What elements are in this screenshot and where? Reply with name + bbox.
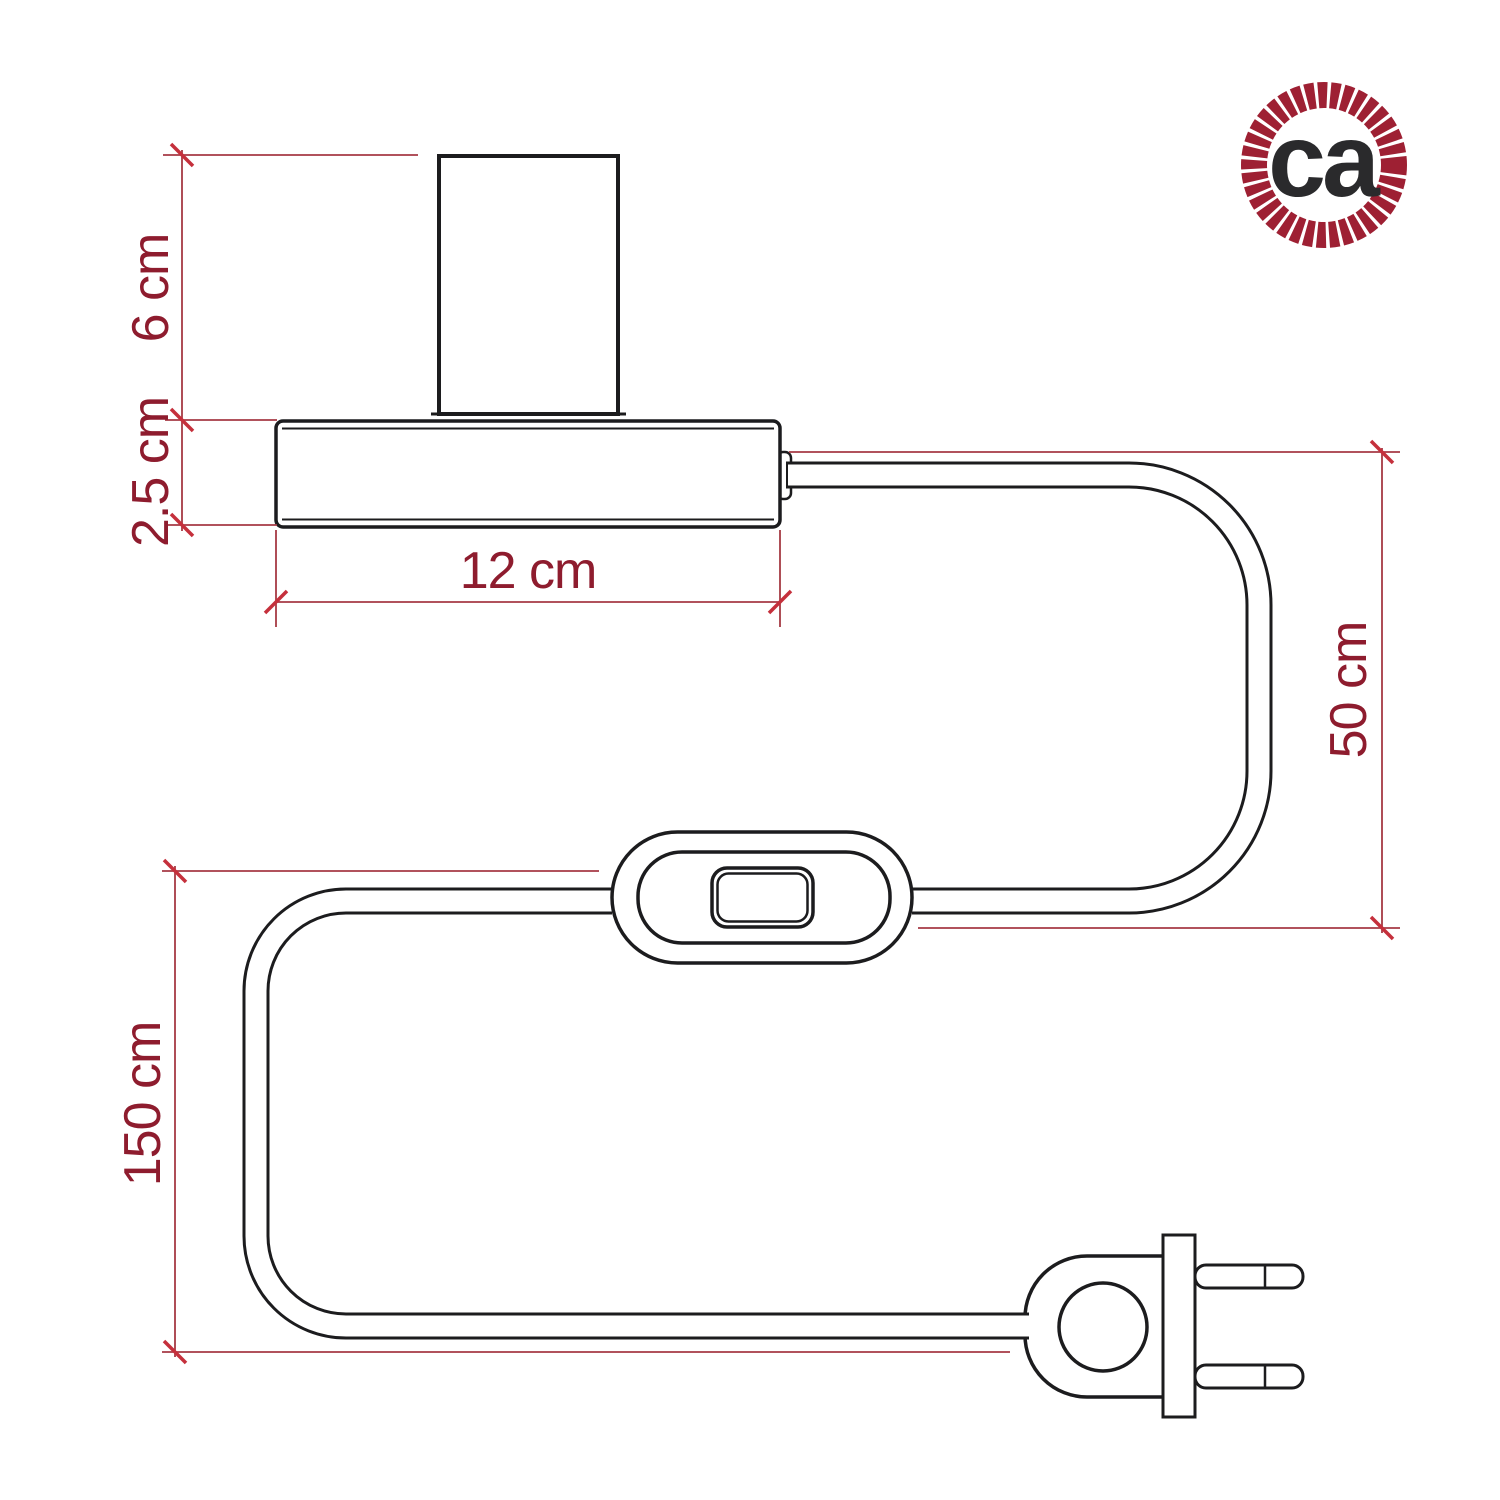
power-plug — [1000, 1235, 1303, 1417]
plug-prong-bottom — [1195, 1365, 1303, 1388]
cable-core-lower — [256, 901, 1043, 1326]
plug-face-plate — [1163, 1235, 1195, 1417]
label-cable-base-to-switch: 50 cm — [1320, 622, 1378, 759]
plug-grip-circle — [1059, 1283, 1147, 1371]
label-base-width: 12 cm — [460, 542, 597, 600]
dimension-base-width: 12 cm — [265, 530, 791, 627]
label-socket-height: 6 cm — [122, 234, 180, 343]
label-base-height: 2.5 cm — [122, 397, 180, 547]
lamp-unit — [276, 156, 780, 527]
cable-outline-lower — [256, 901, 1029, 1326]
lamp-dimension-drawing: 6 cm 2.5 cm 12 cm 50 cm 150 cm — [0, 0, 1500, 1500]
creative-cables-logo: ca — [1240, 81, 1408, 249]
dimension-diagram-page: 6 cm 2.5 cm 12 cm 50 cm 150 cm — [0, 0, 1500, 1500]
logo-monogram: ca — [1268, 103, 1381, 219]
plug-prong-top — [1195, 1265, 1303, 1288]
inline-switch — [612, 832, 912, 963]
label-cable-switch-to-plug: 150 cm — [114, 1022, 172, 1187]
lamp-base — [276, 421, 780, 527]
lamp-socket-cylinder — [439, 156, 618, 414]
cable-switch-to-plug — [256, 901, 1043, 1326]
switch-button — [712, 868, 813, 927]
